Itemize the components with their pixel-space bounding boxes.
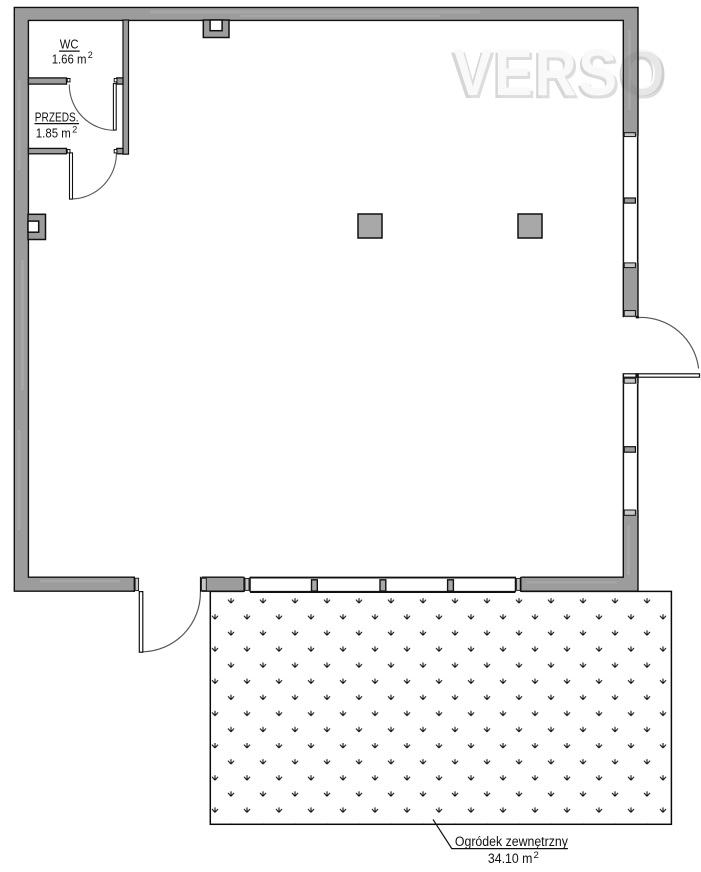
svg-text:2: 2 <box>72 124 77 134</box>
svg-text:34.10 m: 34.10 m <box>488 851 533 866</box>
svg-text:2: 2 <box>534 850 539 861</box>
svg-text:1.85 m: 1.85 m <box>36 126 71 141</box>
svg-text:2: 2 <box>88 50 93 60</box>
svg-text:1.66 m: 1.66 m <box>52 51 87 66</box>
svg-text:O: O <box>618 40 667 110</box>
svg-text:PRZEDS.: PRZEDS. <box>35 109 79 124</box>
svg-text:Ogródek zewnętrzny: Ogródek zewnętrzny <box>455 834 568 849</box>
svg-text:WC: WC <box>60 36 79 51</box>
